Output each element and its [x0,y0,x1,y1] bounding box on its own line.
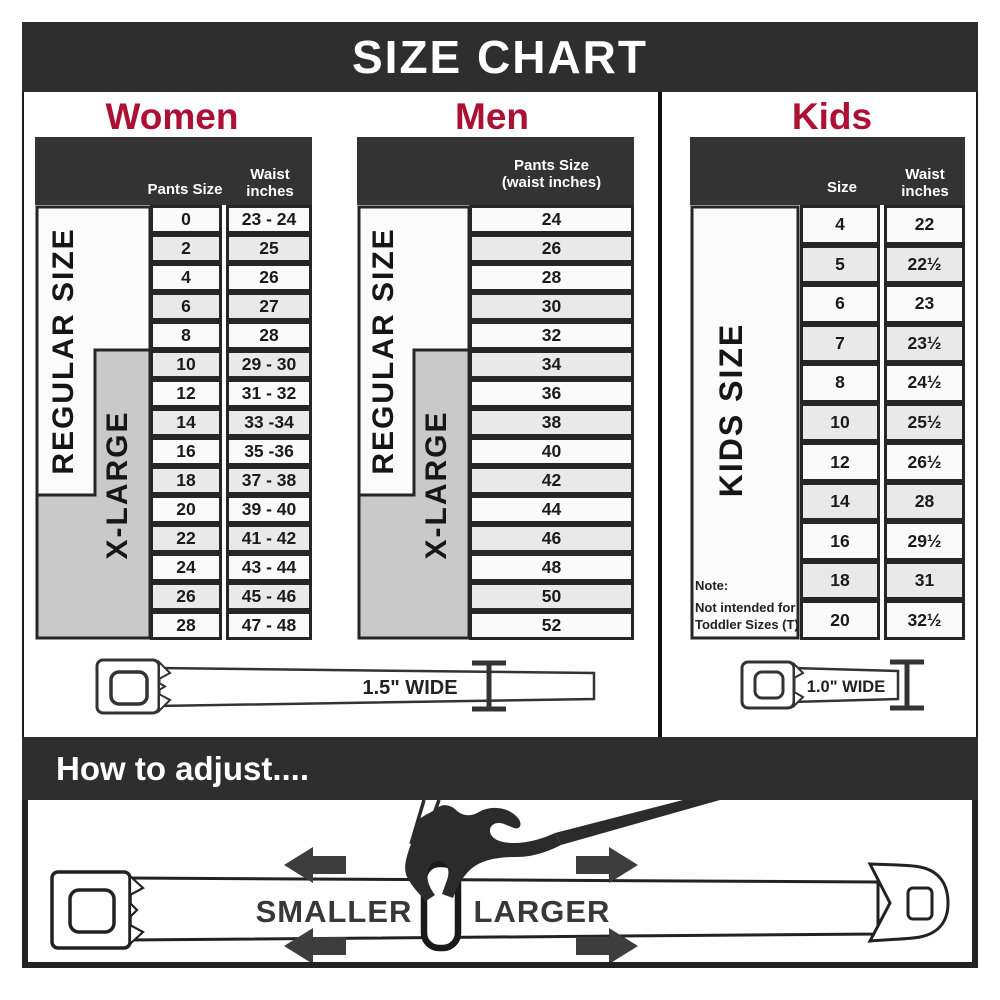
pants-size-cell: 42 [469,466,634,495]
women-table-body: REGULAR SIZE X-LARGE 023 - 2422542662782… [35,205,312,640]
table-row: 2443 - 44 [150,553,312,582]
kids-table-header: Size Waist inches [690,137,965,205]
pants-size-cell: 18 [150,466,222,495]
page-title: SIZE CHART [352,30,648,84]
women-rows: 023 - 242254266278281029 - 301231 - 3214… [150,205,312,640]
table-row: 38 [469,408,634,437]
table-row: 46 [469,524,634,553]
table-row: 623 [800,284,965,324]
kids-note: Note: Not intended for Toddler Sizes (T) [695,578,799,634]
size-cell: 14 [800,482,880,522]
pulled-strap-line [555,800,720,845]
pants-size-cell: 6 [150,292,222,321]
waist-inches-cell: 41 - 42 [226,524,312,553]
table-row: 426 [150,263,312,292]
kids-size-side-label: KIDS SIZE [713,323,749,497]
kids-belt-illustration: 1.0" WIDE [730,654,970,714]
waist-inches-cell: 39 - 40 [226,495,312,524]
size-cell: 5 [800,245,880,285]
table-row: 30 [469,292,634,321]
kids-size-table: Size Waist inches KIDS SIZE Note: Not in… [690,137,965,640]
pants-size-cell: 8 [150,321,222,350]
men-section-title: Men [382,96,602,138]
table-row: 40 [469,437,634,466]
pants-size-cell: 0 [150,205,222,234]
pants-size-cell: 10 [150,350,222,379]
table-row: 723½ [800,324,965,364]
men-size-table: Pants Size (waist inches) REGULAR SIZE X… [357,137,634,640]
pants-size-cell: 22 [150,524,222,553]
belt-tip-slot [908,888,932,919]
waist-inches-cell: 47 - 48 [226,611,312,640]
pants-size-cell: 24 [150,553,222,582]
size-chart-body: Women Men Kids Pants Size Waist inches R… [22,92,978,737]
table-row: 1831 [800,561,965,601]
table-row: 24 [469,205,634,234]
pants-size-cell: 34 [469,350,634,379]
men-size-range-labels: REGULAR SIZE X-LARGE [357,205,469,640]
pants-size-cell: 32 [469,321,634,350]
table-row: 2039 - 40 [150,495,312,524]
pants-size-cell: 4 [150,263,222,292]
pants-size-cell: 30 [469,292,634,321]
waist-inches-cell: 31 [884,561,965,601]
pants-size-cell: 36 [469,379,634,408]
pants-size-cell: 38 [469,408,634,437]
men-regular-size-label: REGULAR SIZE [367,227,400,474]
table-row: 48 [469,553,634,582]
pants-size-cell: 24 [469,205,634,234]
size-cell: 12 [800,442,880,482]
adjustment-diagram-art: SMALLER LARGER [28,800,972,962]
waist-inches-cell: 25 [226,234,312,263]
kids-col-size: Size [802,179,882,196]
waist-inches-cell: 28 [884,482,965,522]
pants-size-cell: 12 [150,379,222,408]
size-cell: 7 [800,324,880,364]
women-xlarge-label: X-LARGE [101,411,134,560]
pants-size-cell: 46 [469,524,634,553]
table-row: 824½ [800,363,965,403]
kids-table-body: KIDS SIZE Note: Not intended for Toddler… [690,205,965,640]
adult-belt-illustration: 1.5" WIDE [89,653,629,717]
table-row: 2241 - 42 [150,524,312,553]
table-row: 627 [150,292,312,321]
waist-inches-cell: 23 [884,284,965,324]
waist-inches-cell: 45 - 46 [226,582,312,611]
size-cell: 6 [800,284,880,324]
pants-size-cell: 20 [150,495,222,524]
table-row: 522½ [800,245,965,285]
size-chart-page: SIZE CHART Women Men Kids Pants Size Wai… [0,0,1000,1000]
waist-inches-cell: 43 - 44 [226,553,312,582]
larger-label: LARGER [474,894,611,929]
women-size-table: Pants Size Waist inches REGULAR SIZE X-L… [35,137,312,640]
waist-inches-cell: 29½ [884,521,965,561]
pants-size-cell: 48 [469,553,634,582]
waist-inches-cell: 31 - 32 [226,379,312,408]
table-row: 1433 -34 [150,408,312,437]
waist-inches-cell: 27 [226,292,312,321]
table-row: 50 [469,582,634,611]
table-row: 36 [469,379,634,408]
kids-section-divider [658,92,662,737]
pants-size-cell: 2 [150,234,222,263]
women-table-header: Pants Size Waist inches [35,137,312,205]
men-xlarge-label: X-LARGE [420,411,453,560]
men-rows: 242628303234363840424446485052 [469,205,634,640]
smaller-label: SMALLER [256,894,413,929]
table-row: 023 - 24 [150,205,312,234]
size-cell: 10 [800,403,880,443]
pants-size-cell: 40 [469,437,634,466]
women-size-range-labels: REGULAR SIZE X-LARGE [35,205,150,640]
size-cell: 20 [800,600,880,640]
men-col-pants-size: Pants Size (waist inches) [469,157,634,192]
men-table-body: REGULAR SIZE X-LARGE 2426283032343638404… [357,205,634,640]
women-section-title: Women [62,96,282,138]
waist-inches-cell: 37 - 38 [226,466,312,495]
pants-size-cell: 16 [150,437,222,466]
table-row: 1226½ [800,442,965,482]
waist-inches-cell: 24½ [884,363,965,403]
women-col-waist: Waist inches [229,166,311,201]
table-row: 1428 [800,482,965,522]
pants-size-cell: 28 [150,611,222,640]
pants-size-cell: 50 [469,582,634,611]
size-chart-banner: SIZE CHART [22,22,978,92]
adjustment-diagram: SMALLER LARGER [22,800,978,968]
pants-size-cell: 52 [469,611,634,640]
women-regular-size-label: REGULAR SIZE [47,227,80,474]
table-row: 1629½ [800,521,965,561]
belt-buckle [52,872,143,948]
waist-inches-cell: 32½ [884,600,965,640]
table-row: 52 [469,611,634,640]
pants-size-cell: 28 [469,263,634,292]
kids-size-range-labels: KIDS SIZE [690,205,800,640]
waist-inches-cell: 26½ [884,442,965,482]
table-row: 1025½ [800,403,965,443]
size-cell: 18 [800,561,880,601]
table-row: 28 [469,263,634,292]
adult-belt-width-label: 1.5" WIDE [362,677,457,699]
pants-size-cell: 44 [469,495,634,524]
kids-col-waist: Waist inches [886,166,964,201]
table-row: 44 [469,495,634,524]
waist-inches-cell: 23½ [884,324,965,364]
women-col-pants-size: Pants Size [145,181,225,198]
size-cell: 4 [800,205,880,245]
how-to-adjust-banner: How to adjust.... [22,737,978,800]
pants-size-cell: 26 [469,234,634,263]
waist-inches-cell: 28 [226,321,312,350]
table-row: 2645 - 46 [150,582,312,611]
waist-inches-cell: 25½ [884,403,965,443]
size-cell: 8 [800,363,880,403]
size-cell: 16 [800,521,880,561]
waist-inches-cell: 29 - 30 [226,350,312,379]
pants-size-cell: 14 [150,408,222,437]
kids-rows: 422522½623723½824½1025½1226½14281629½183… [800,205,965,640]
table-row: 2847 - 48 [150,611,312,640]
waist-inches-cell: 22 [884,205,965,245]
waist-inches-cell: 26 [226,263,312,292]
table-row: 42 [469,466,634,495]
men-table-header: Pants Size (waist inches) [357,137,634,205]
table-row: 422 [800,205,965,245]
table-row: 32 [469,321,634,350]
table-row: 26 [469,234,634,263]
waist-inches-cell: 22½ [884,245,965,285]
table-row: 1029 - 30 [150,350,312,379]
table-row: 34 [469,350,634,379]
waist-inches-cell: 23 - 24 [226,205,312,234]
table-row: 2032½ [800,600,965,640]
table-row: 1837 - 38 [150,466,312,495]
how-to-adjust-title: How to adjust.... [56,750,309,788]
table-row: 828 [150,321,312,350]
waist-inches-cell: 35 -36 [226,437,312,466]
table-row: 225 [150,234,312,263]
waist-inches-cell: 33 -34 [226,408,312,437]
kids-section-title: Kids [722,96,942,138]
table-row: 1231 - 32 [150,379,312,408]
pants-size-cell: 26 [150,582,222,611]
larger-arrow-top [576,847,638,883]
kids-belt-width-label: 1.0" WIDE [807,678,885,696]
table-row: 1635 -36 [150,437,312,466]
